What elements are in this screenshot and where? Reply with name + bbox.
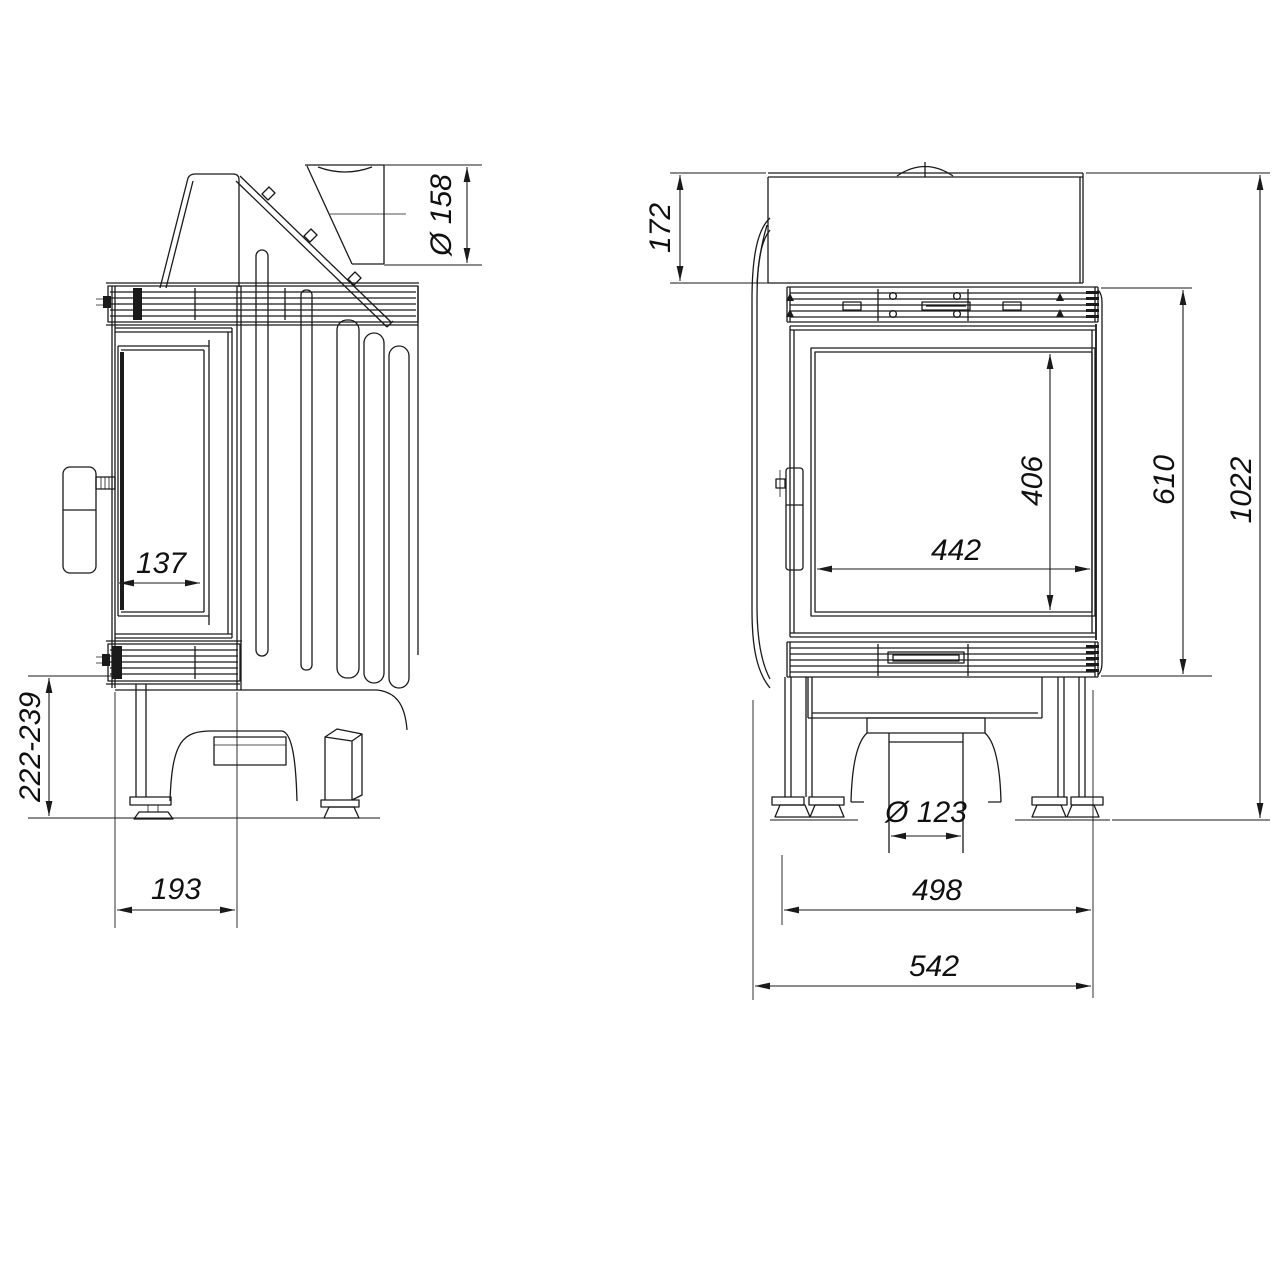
fin-4 bbox=[364, 333, 384, 683]
flue-stub bbox=[305, 165, 384, 264]
front-top-band bbox=[787, 287, 1098, 322]
dim-label-firebox-front-height: 610 bbox=[1148, 455, 1181, 505]
technical-drawing-page: Ø 158 137 222-239 193 172 406 610 1022 4… bbox=[0, 0, 1280, 1280]
bottom-band-dark-details bbox=[102, 646, 122, 679]
glass-outer-frame bbox=[811, 348, 1095, 616]
front-foot-stem bbox=[148, 805, 158, 812]
roof-clamps bbox=[262, 187, 361, 285]
dimension-flue-diameter: Ø 158 bbox=[384, 165, 482, 265]
right-foot-plate-b bbox=[1071, 797, 1103, 805]
door-frame bbox=[115, 328, 232, 638]
handle-bar bbox=[63, 467, 96, 573]
fin-1 bbox=[256, 250, 268, 656]
air-inlet-column bbox=[889, 733, 963, 853]
dim-label-overall-width: 542 bbox=[909, 950, 959, 983]
rear-foot-plate bbox=[321, 800, 359, 807]
dim-label-overall-height: 1022 bbox=[1225, 456, 1258, 523]
dim-label-flue-diameter: Ø 158 bbox=[425, 174, 458, 257]
dim-label-top-section-height: 172 bbox=[644, 203, 677, 253]
side-view bbox=[28, 165, 419, 819]
dimension-glass-height: 406 bbox=[1016, 354, 1050, 610]
front-leg-lines bbox=[136, 684, 146, 797]
front-foot-plate bbox=[130, 797, 171, 805]
flue-collar-arc bbox=[897, 162, 953, 177]
left-foot-plate-b bbox=[809, 797, 844, 805]
dim-label-body-width: 498 bbox=[912, 874, 962, 907]
fin-3 bbox=[337, 320, 359, 678]
dimension-air-inlet-diameter: Ø 123 bbox=[884, 796, 967, 836]
right-side-fin-profile bbox=[1098, 290, 1102, 675]
right-foot-plate-a bbox=[1032, 797, 1067, 805]
dimension-overall-width: 542 bbox=[753, 700, 1091, 1000]
ash-box bbox=[214, 737, 286, 765]
base-recess bbox=[808, 677, 1042, 718]
front-bottom-band bbox=[787, 642, 1098, 677]
left-foot-plate-a bbox=[772, 797, 804, 805]
fin-2 bbox=[301, 290, 312, 670]
base-plinth bbox=[867, 718, 985, 733]
dim-label-glass-height: 406 bbox=[1016, 456, 1049, 506]
handle-latch bbox=[776, 479, 785, 488]
dim-label-glass-width: 442 bbox=[931, 534, 981, 567]
door-handle-side bbox=[63, 467, 115, 573]
dimension-top-section-height: 172 bbox=[644, 173, 786, 283]
dim-label-base-clearance: 222-239 bbox=[14, 692, 47, 803]
front-door bbox=[790, 326, 1095, 637]
dimension-base-clearance: 222-239 bbox=[14, 676, 112, 816]
rear-foot-base bbox=[324, 807, 359, 818]
rear-leg-lines bbox=[325, 729, 362, 800]
left-side-fin-profile bbox=[752, 218, 770, 688]
dimension-glass-width: 442 bbox=[817, 534, 1090, 569]
fin-5 bbox=[389, 346, 409, 688]
dimension-firebox-front-height: 610 bbox=[1101, 288, 1212, 676]
top-box bbox=[757, 173, 1083, 283]
band-slots bbox=[843, 302, 1021, 310]
right-feet bbox=[1032, 805, 1099, 817]
handle-hub-hatch bbox=[101, 477, 109, 489]
underbody bbox=[115, 286, 418, 730]
bottom-louver-band bbox=[106, 641, 242, 684]
dimension-front-section-depth: 193 bbox=[115, 692, 237, 928]
band-right-cap-stripes bbox=[1086, 291, 1099, 318]
bottom-band-right-cap-stripes bbox=[1086, 645, 1099, 672]
left-feet bbox=[775, 805, 844, 817]
front-view bbox=[752, 162, 1110, 853]
right-leg-lines bbox=[1058, 677, 1085, 797]
hood-outline bbox=[160, 174, 239, 288]
base-arch bbox=[170, 731, 297, 801]
base-haunches bbox=[851, 733, 1001, 802]
dim-label-air-inlet-diameter: Ø 123 bbox=[884, 796, 967, 829]
dim-label-glass-depth: 137 bbox=[136, 547, 187, 580]
dimension-glass-depth: 137 bbox=[119, 547, 200, 583]
fireplace-dimension-drawing: Ø 158 137 222-239 193 172 406 610 1022 4… bbox=[0, 0, 1280, 1280]
rear-leg bbox=[321, 729, 362, 818]
dim-label-front-section-depth: 193 bbox=[151, 873, 201, 906]
front-leg bbox=[130, 684, 173, 819]
top-louver-band bbox=[106, 283, 419, 325]
